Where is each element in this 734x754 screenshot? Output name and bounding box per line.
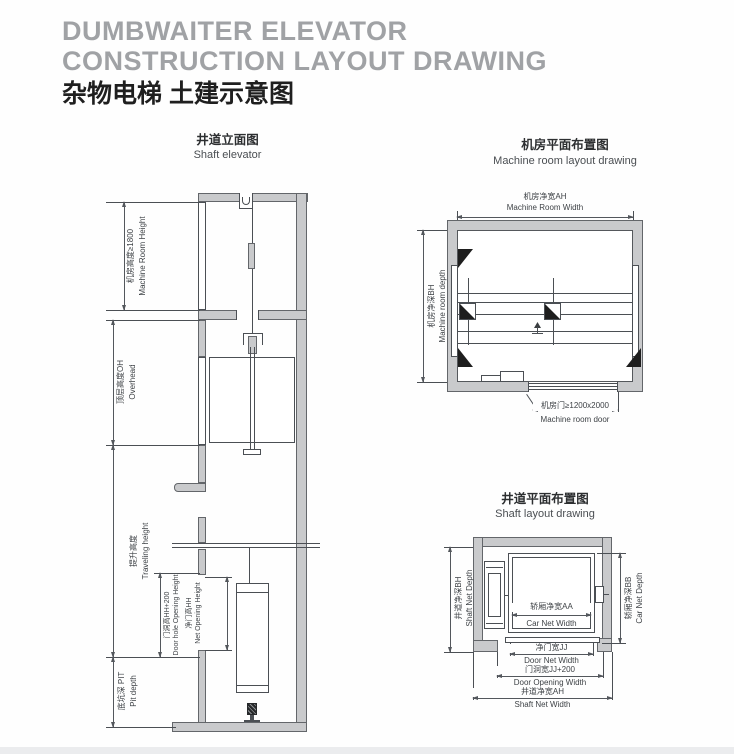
connector-line [604, 594, 609, 595]
dim-shaft-net-width [473, 698, 612, 699]
dim-label-shaft-net-width-en: Shaft Net Width [473, 701, 612, 710]
control-cabinet [481, 375, 501, 382]
landing-floor-line [172, 547, 320, 548]
dim-label-door-net-width-cn: 净门宽JJ [510, 644, 593, 653]
left-wall-segment [198, 549, 206, 575]
construction-layout-drawing: DUMBWAITER ELEVATOR CONSTRUCTION LAYOUT … [0, 0, 734, 754]
shaft-rear-wall [473, 537, 612, 547]
dim-label-door-opening-width-cn: 门洞宽JJ+200 [497, 666, 603, 675]
machine-beam-line [458, 343, 632, 344]
dim-label-door-opening-height-cn: 门洞高HH+200 [164, 571, 172, 659]
dim-label-net-opening-height-cn: 净门高HH [186, 574, 194, 652]
page-title-en-line2: CONSTRUCTION LAYOUT DRAWING [62, 48, 547, 75]
dim-door-net-width [510, 654, 593, 655]
shaft-right-wall [296, 193, 307, 732]
dim-overhead [113, 320, 114, 445]
mount-marker-icon [545, 304, 560, 319]
pit-buffer [247, 703, 257, 715]
dim-label-car-net-width-en: Car Net Width [512, 620, 591, 629]
dim-machine-room-height [124, 202, 125, 310]
suspension-rope [249, 548, 250, 583]
dim-label-machine-room-height-en: Machine Room Height [139, 198, 148, 314]
dim-machine-room-depth [423, 230, 424, 382]
dim-label-shaft-net-depth-en: Shaft Net Depth [466, 542, 475, 654]
guide-rail-inner [488, 573, 501, 617]
left-wall-segment [198, 320, 206, 357]
extension-line [612, 652, 613, 700]
landing-floor-line [172, 543, 320, 544]
dim-label-overhead-cn: 顶层高度OH [117, 332, 126, 432]
page-title-en-line1: DUMBWAITER ELEVATOR [62, 18, 408, 45]
dim-label-car-net-depth-cn: 轿厢净深BB [625, 550, 634, 646]
car-top-line [236, 592, 269, 593]
rope-slot [236, 310, 259, 320]
extension-line [106, 445, 200, 446]
buffer-base [244, 720, 260, 722]
dim-label-machine-room-width-cn: 机房净宽AH [457, 193, 633, 202]
dim-label-net-opening-height-en: Net Opening Height [195, 574, 203, 652]
extension-line [106, 202, 200, 203]
pulley-beam [243, 333, 263, 334]
machine-room-title-cn: 机房平面布置图 [455, 139, 675, 152]
car-bottom-line [236, 685, 269, 686]
car-lower-position [236, 583, 269, 693]
extension-line [106, 727, 176, 728]
car-ram [254, 347, 255, 449]
dim-label-pit-depth-cn: 底坑深 PIT [118, 656, 127, 726]
dim-label-traveling-height-cn: 提升高度 [130, 476, 139, 626]
left-wall-segment [198, 650, 206, 724]
extension-line [106, 320, 200, 321]
left-wall-recess [451, 265, 458, 357]
dim-label-machine-room-door-cn: 机房门≥1200x2000 [533, 402, 617, 411]
machine-room-door-opening [528, 382, 618, 392]
dim-label-machine-room-depth-en: Machine room depth [439, 231, 448, 381]
rope-hitch-cylinder [248, 243, 255, 269]
left-wall-segment [198, 445, 206, 483]
guide-shoe [595, 586, 604, 603]
car-ram [250, 347, 251, 449]
dim-label-door-opening-height-en: Door hole Opening Height [173, 571, 181, 659]
extension-line [106, 310, 200, 311]
machine-room-left-wall [198, 202, 206, 310]
connector-line [505, 595, 509, 596]
extension-line [618, 392, 619, 412]
upper-landing-sill [174, 483, 206, 492]
page-edge-strip [0, 747, 734, 754]
dim-label-machine-room-depth-cn: 机房净深BH [428, 231, 437, 381]
machine-mount [544, 303, 561, 320]
dim-label-shaft-net-depth-cn: 井道净深BH [455, 542, 464, 654]
dim-label-traveling-height-en: Traveling height [142, 476, 151, 626]
dim-pit-depth [113, 657, 114, 727]
door-jamb [473, 640, 498, 652]
dim-door-opening-height [160, 573, 161, 657]
rail-bracket [486, 567, 503, 568]
dim-label-machine-room-height-cn: 机房高度≥1800 [127, 198, 136, 314]
dim-traveling-height [113, 445, 114, 657]
extension-line [602, 643, 626, 644]
pit-floor-slab [172, 722, 307, 732]
left-wall-segment [198, 357, 206, 445]
machine-room-title-en: Machine room layout drawing [455, 156, 675, 167]
dim-car-net-depth [620, 553, 621, 643]
ram-base [243, 449, 261, 455]
rail-bracket [486, 623, 503, 624]
dim-label-shaft-net-width-cn: 井道净宽AH [473, 688, 612, 697]
dim-machine-room-width [457, 217, 633, 218]
shaft-plan-title-cn: 井道平面布置图 [440, 493, 650, 506]
page-title-cn: 杂物电梯 土建示意图 [62, 82, 294, 107]
car-upper-position [209, 357, 295, 443]
dim-label-overhead-en: Overhead [129, 332, 138, 432]
dim-label-car-net-width-cn: 轿厢净宽AA [512, 603, 591, 612]
dim-net-opening-height [227, 577, 228, 650]
lifting-hook-icon [242, 197, 250, 205]
machine-beam-line [458, 293, 632, 294]
pulley-flange [262, 333, 263, 345]
control-cabinet [500, 371, 524, 382]
dim-shaft-net-depth [450, 547, 451, 652]
dim-label-machine-room-width-en: Machine Room Width [457, 204, 633, 213]
left-wall-segment [198, 517, 206, 543]
shaft-top-slab [198, 193, 308, 202]
shaft-elevation-title-cn: 井道立面图 [155, 134, 300, 147]
machine-beam-line [458, 331, 632, 332]
dim-label-machine-room-door-en: Machine room door [520, 416, 630, 425]
right-wall-recess [632, 265, 639, 357]
machine-mount [459, 303, 476, 320]
pulley-flange [243, 333, 244, 345]
shaft-elevation-title-en: Shaft elevator [155, 150, 300, 161]
dim-door-opening-width [497, 676, 603, 677]
shaft-plan-title-en: Shaft layout drawing [440, 509, 650, 520]
mount-marker-icon [460, 304, 475, 319]
arrow-base [532, 333, 543, 334]
dim-label-car-net-depth-en: Car Net Depth [636, 550, 645, 646]
dim-label-pit-depth-en: Pit depth [130, 656, 139, 726]
dim-car-net-width [512, 615, 591, 616]
